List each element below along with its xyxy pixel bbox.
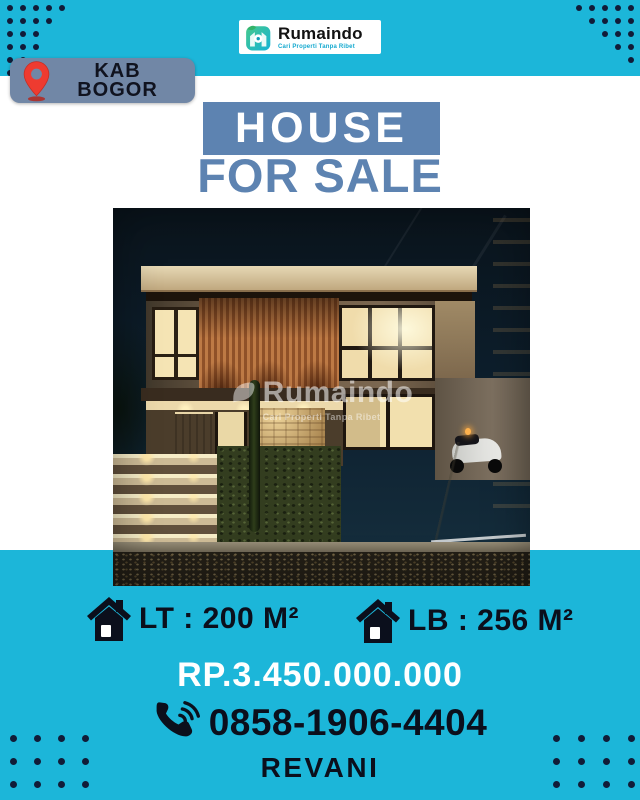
photo-step (113, 514, 225, 534)
watermark-tagline: Cari Properti Tanpa Ribet (263, 412, 381, 422)
flyer-poster: Rumaindo Cari Properti Tanpa Ribet KAB B… (0, 0, 640, 800)
brand-text: Rumaindo Cari Properti Tanpa Ribet (278, 25, 363, 50)
photo-step (113, 474, 225, 494)
location-text: KAB BOGOR (52, 62, 195, 100)
house-icon (84, 596, 134, 642)
brand-tagline: Cari Properti Tanpa Ribet (278, 44, 363, 50)
photo-upper-right-wall (435, 301, 475, 388)
photo-step (113, 454, 225, 474)
title-house-box: HOUSE (203, 102, 440, 155)
photo-wood-slat-screen (199, 298, 339, 388)
phone-volume-icon (153, 700, 200, 744)
price-text: RP.3.450.000.000 (0, 658, 640, 692)
brand-name: Rumaindo (278, 25, 363, 42)
spec-label: LB : 256 M² (408, 604, 574, 638)
photo-driveway (323, 442, 530, 548)
spec-land-area: LT : 200 M² (84, 596, 299, 642)
location-badge: KAB BOGOR (10, 58, 195, 103)
watermark-row: Rumaindo (230, 376, 414, 410)
house-icon (353, 598, 403, 644)
phone-number: 0858-1906-4404 (209, 704, 488, 741)
photo-step (113, 494, 225, 514)
location-line2: BOGOR (52, 81, 183, 100)
photo-sidewalk (113, 542, 530, 552)
brand-logo: Rumaindo Cari Properti Tanpa Ribet (239, 20, 381, 54)
spec-building-area: LB : 256 M² (353, 598, 574, 644)
contact-phone-row: 0858-1906-4404 (0, 700, 640, 744)
spec-label: LT : 200 M² (139, 602, 299, 636)
watermark-leaf-icon (230, 380, 256, 406)
photo-road (113, 552, 530, 586)
motorcycle-light (465, 428, 471, 435)
photo-entry-steps (113, 454, 225, 554)
photo-roof-fascia (141, 266, 477, 292)
agent-name: REVANI (0, 754, 640, 782)
rumaindo-logo-icon (245, 24, 272, 51)
title-line1: HOUSE (235, 107, 408, 150)
photo-upper-window-grid (339, 305, 435, 381)
title-for-sale: FOR SALE (0, 152, 640, 199)
map-pin-icon (21, 60, 52, 102)
photo-upper-left-window (152, 307, 199, 380)
property-photo: Rumaindo Cari Properti Tanpa Ribet (113, 208, 530, 586)
photo-watermark: Rumaindo Cari Properti Tanpa Ribet (113, 376, 530, 422)
watermark-text: Rumaindo (263, 376, 414, 410)
photo-garden (217, 446, 341, 552)
location-line1: KAB (52, 62, 183, 81)
